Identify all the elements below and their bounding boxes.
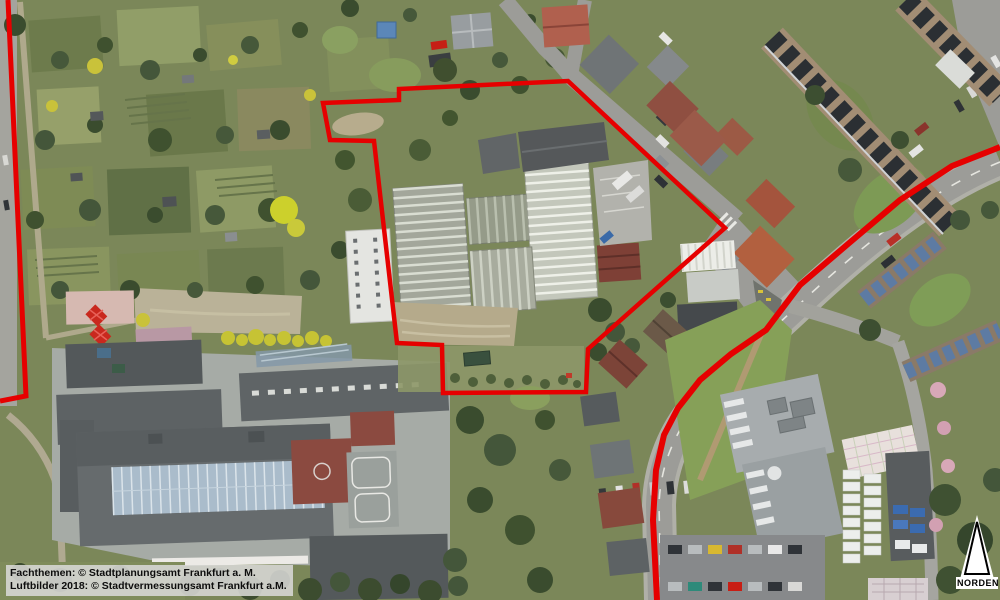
aerial-photo xyxy=(0,0,1000,600)
aerial-map: Fachthemen: © Stadtplanungsamt Frankfurt… xyxy=(0,0,1000,600)
map-attribution: Fachthemen: © Stadtplanungsamt Frankfurt… xyxy=(6,565,293,596)
north-arrow: NORDEN xyxy=(956,513,998,589)
traffic-training-area xyxy=(346,451,399,529)
north-arrow-icon xyxy=(958,513,996,583)
attribution-line1: Fachthemen: © Stadtplanungsamt Frankfurt… xyxy=(10,567,287,580)
green-container xyxy=(464,351,491,366)
attribution-line2: Luftbilder 2018: © Stadtvermessungsamt F… xyxy=(10,580,287,593)
grid-roof-building xyxy=(868,578,928,600)
garden-pool xyxy=(377,22,396,38)
north-arrow-label: NORDEN xyxy=(956,577,998,589)
red-roof-shed xyxy=(597,243,641,283)
